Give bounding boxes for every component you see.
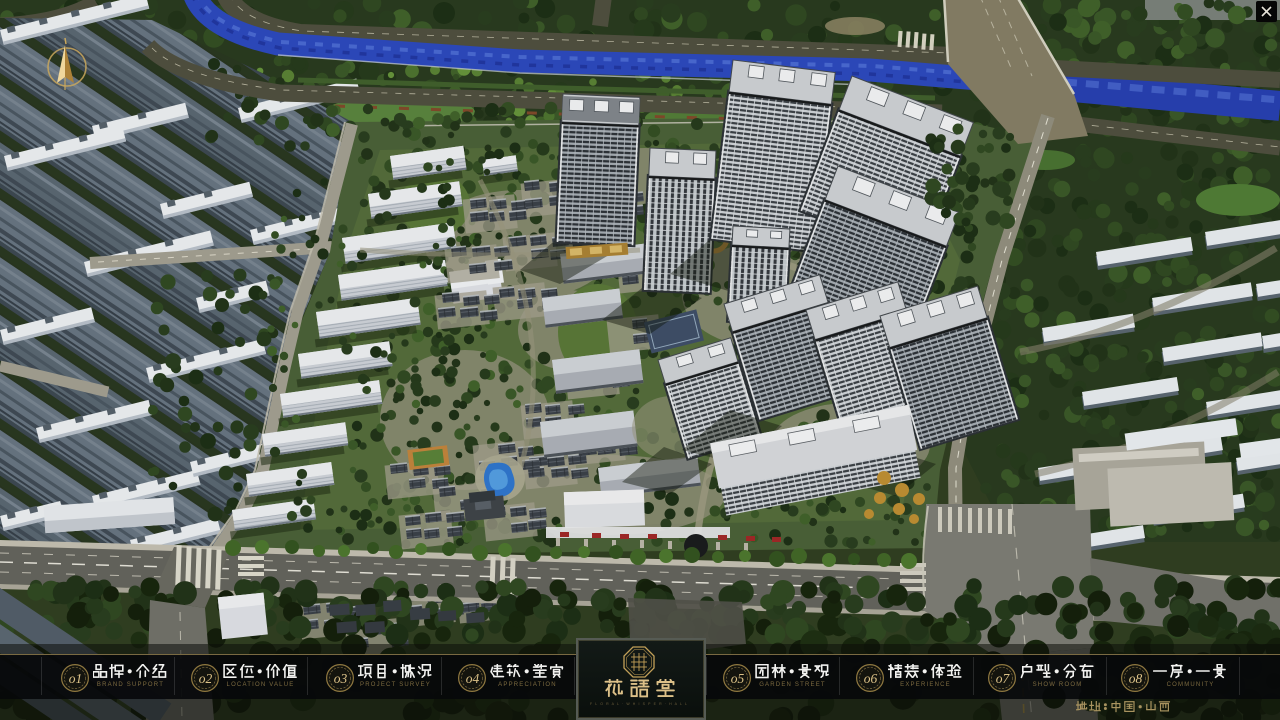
svg-text:o2: o2 <box>199 671 213 686</box>
svg-text:o3: o3 <box>334 671 348 686</box>
svg-text:o1: o1 <box>69 671 83 686</box>
svg-text:o8: o8 <box>1129 671 1143 686</box>
svg-text:o5: o5 <box>731 671 745 686</box>
svg-text:o6: o6 <box>864 671 878 686</box>
svg-text:o4: o4 <box>466 671 480 686</box>
svg-text:o7: o7 <box>996 671 1011 686</box>
